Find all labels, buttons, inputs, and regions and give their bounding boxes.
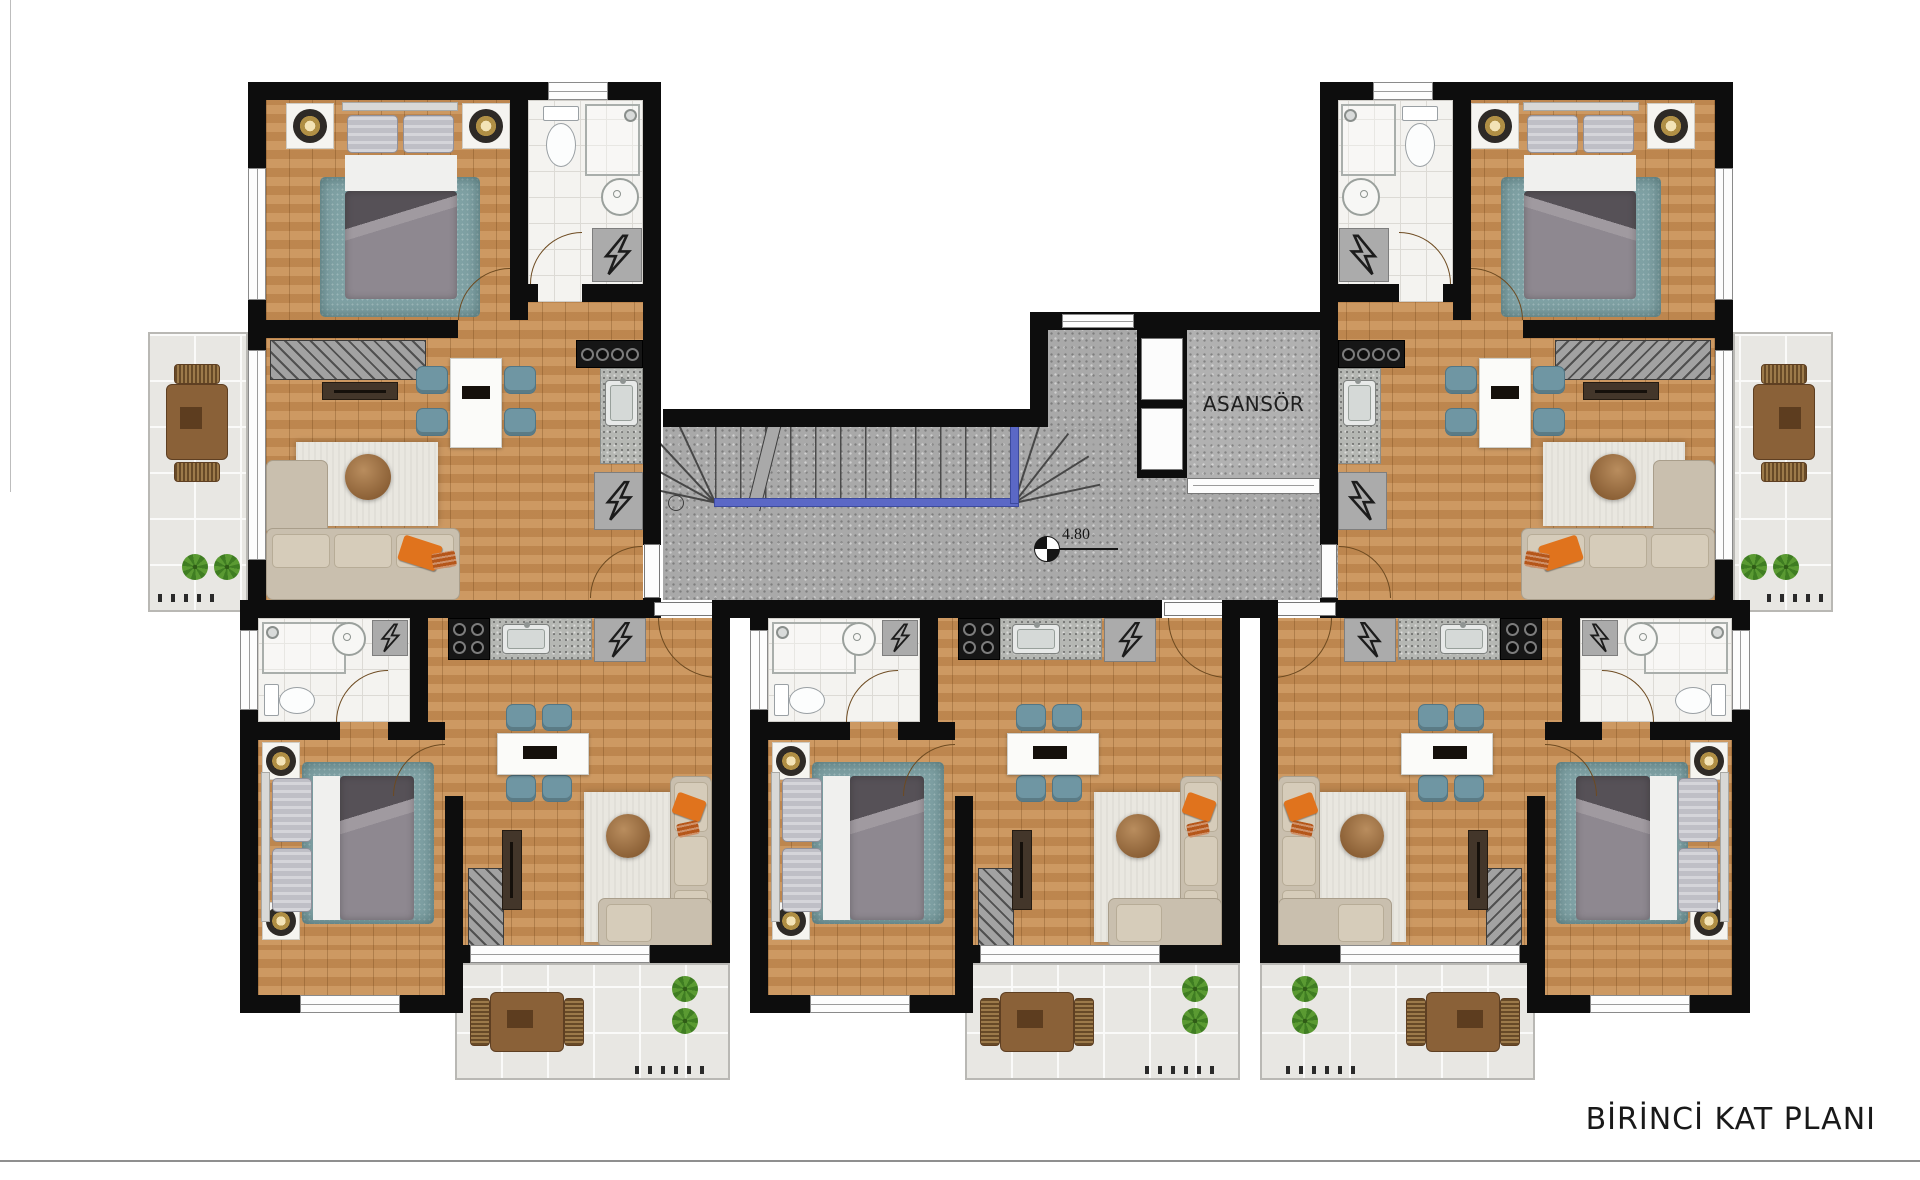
dining-chair [1454, 704, 1484, 731]
coffee-table [606, 814, 650, 858]
sofa-cushion [1282, 836, 1316, 886]
washbasin [332, 622, 366, 656]
wardrobe [1486, 868, 1522, 956]
dimension-ticks [1285, 1066, 1355, 1074]
dining-chair [1454, 775, 1484, 802]
bed-headboard [342, 102, 458, 111]
balcony-table [1426, 992, 1500, 1052]
corridor-wall [1240, 600, 1260, 618]
corridor-wall [663, 409, 1048, 427]
balcony-table [490, 992, 564, 1052]
dining-chair [504, 408, 536, 436]
electrical-panel [594, 472, 643, 530]
elevator-door [1141, 408, 1183, 470]
wardrobe [468, 868, 504, 956]
entry-door-sill [644, 544, 660, 598]
electrical-panel [1339, 228, 1389, 282]
balcony-slider-window [1715, 350, 1733, 560]
entry-door-sill [1321, 544, 1337, 598]
corridor-wall [750, 600, 1162, 618]
lightning-bolt-icon [1345, 619, 1395, 661]
burner-icon [453, 641, 466, 654]
kitchen-sink [1012, 624, 1060, 654]
apartment-top-left [148, 82, 661, 618]
dining-chair [542, 775, 572, 802]
bathroom-window [750, 630, 768, 710]
dining-chair [416, 408, 448, 436]
dining-chair [416, 366, 448, 394]
dining-table [1479, 358, 1531, 448]
entry-door-sill [1164, 602, 1226, 616]
electrical-panel [1104, 618, 1156, 662]
balcony-chair [1761, 364, 1807, 384]
coffee-table [345, 454, 391, 500]
electrical-panel [1582, 620, 1618, 656]
balcony-slider-window [1340, 945, 1520, 963]
corridor-wall [1030, 312, 1048, 427]
bathroom-window [1732, 630, 1750, 710]
frame-line [10, 0, 11, 492]
bed-sheet [1524, 155, 1636, 191]
partition-wall [410, 618, 428, 722]
balcony-slider-window [980, 945, 1160, 963]
frame-line [0, 1160, 1920, 1162]
party-wall [1320, 82, 1338, 545]
bed-pillow [782, 778, 822, 842]
sofa-cushion [1651, 534, 1709, 568]
lightning-bolt-icon [883, 621, 917, 655]
dining-chair [506, 704, 536, 731]
lamp-icon [293, 109, 327, 143]
electrical-panel [372, 620, 408, 656]
table-runner [1033, 746, 1067, 759]
burner-icon [963, 623, 976, 636]
burner-icon [981, 623, 994, 636]
burner-icon [471, 623, 484, 636]
level-value: 4.80 [1062, 526, 1090, 544]
partition-wall [266, 320, 458, 338]
partition-wall [920, 618, 938, 722]
corridor-wall [1338, 600, 1750, 618]
soundbar [1477, 842, 1480, 898]
lamp-icon [776, 746, 806, 776]
toilet-tank [774, 684, 789, 716]
kitchen-sink [605, 380, 638, 426]
stove [448, 618, 490, 660]
plant-icon [1292, 976, 1318, 1002]
plant-icon [1292, 1008, 1318, 1034]
dining-chair [1533, 366, 1565, 394]
party-wall [712, 600, 730, 963]
sofa-cushion [674, 836, 708, 886]
toilet-tank [1402, 106, 1438, 121]
toilet-tank [543, 106, 579, 121]
partition-wall [240, 722, 340, 740]
partition-wall [1523, 320, 1715, 338]
burner-icon [471, 641, 484, 654]
washbasin [1624, 622, 1658, 656]
dining-chair [1533, 408, 1565, 436]
partition-wall [510, 100, 528, 320]
bedroom-window [300, 995, 400, 1013]
toilet-bowl [1405, 123, 1435, 167]
bed-pillow [1678, 778, 1718, 842]
kitchen-sink [1343, 380, 1376, 426]
entry-door-sill [654, 602, 716, 616]
plant-icon [1182, 1008, 1208, 1034]
bed-sheet [345, 155, 457, 191]
bed-pillow [272, 848, 312, 912]
sofa-chaise [266, 460, 328, 536]
burner-icon [1387, 348, 1400, 361]
sofa-cushion [1184, 836, 1218, 886]
stair-handrail [1011, 427, 1018, 503]
dining-chair [1016, 775, 1046, 802]
toilet-tank [264, 684, 279, 716]
burner-icon [1342, 348, 1355, 361]
partition-wall [898, 722, 955, 740]
bed-blanket [345, 191, 457, 299]
balcony-chair [470, 998, 490, 1046]
coffee-table [1340, 814, 1384, 858]
burner-icon [581, 348, 594, 361]
toilet-tank [1711, 684, 1726, 716]
lightning-bolt-icon [593, 229, 641, 281]
plant-icon [1741, 554, 1767, 580]
bedroom-floor [768, 945, 955, 995]
partition-wall [388, 722, 445, 740]
stair-start-marker [668, 495, 684, 511]
bathroom-window [1373, 82, 1433, 100]
balcony-table [166, 384, 228, 460]
dining-chair [1418, 704, 1448, 731]
soundbar [334, 390, 386, 393]
lightning-bolt-icon [595, 473, 642, 529]
dining-chair [504, 366, 536, 394]
kitchen-sink [502, 624, 550, 654]
burner-icon [1524, 623, 1537, 636]
shower-head-icon [624, 109, 637, 122]
corridor-wall [730, 600, 750, 618]
stove [958, 618, 1000, 660]
toilet-bowl [279, 687, 315, 714]
balcony-chair [1500, 998, 1520, 1046]
bed-blanket [340, 776, 414, 920]
electrical-panel [882, 620, 918, 656]
plant-icon [214, 554, 240, 580]
washbasin [842, 622, 876, 656]
balcony-slider-window [470, 945, 650, 963]
plant-icon [1773, 554, 1799, 580]
stove [1338, 340, 1405, 368]
elevator-door [1141, 338, 1183, 400]
wardrobe [270, 340, 426, 380]
bed-blanket [850, 776, 924, 920]
stove [576, 340, 643, 368]
bed-blanket [1576, 776, 1650, 920]
lightning-bolt-icon [595, 619, 645, 661]
bedroom-window [1590, 995, 1690, 1013]
soundbar [510, 842, 513, 898]
dining-chair [542, 704, 572, 731]
corridor-window [1062, 314, 1134, 328]
plant-icon [182, 554, 208, 580]
bed-pillow [347, 115, 398, 153]
sofa-chaise [1653, 460, 1715, 536]
lightning-bolt-icon [1105, 619, 1155, 661]
lightning-bolt-icon [1583, 621, 1617, 655]
shower-head-icon [266, 626, 279, 639]
page-title: BİRİNCİ KAT PLANI [1586, 1102, 1876, 1137]
balcony-chair [564, 998, 584, 1046]
bedroom-window [1715, 168, 1733, 300]
washbasin [601, 178, 639, 216]
bed-pillow [1527, 115, 1578, 153]
plant-icon [672, 1008, 698, 1034]
sofa-cushion [1589, 534, 1647, 568]
bedroom-window [810, 995, 910, 1013]
lamp-icon [1478, 109, 1512, 143]
dining-chair [1052, 704, 1082, 731]
partition-wall [1443, 284, 1453, 302]
bedroom-floor [1545, 945, 1732, 995]
partition-wall [1545, 722, 1602, 740]
apartment-bottom-right [1260, 600, 1750, 1080]
burner-icon [596, 348, 609, 361]
electrical-panel [592, 228, 642, 282]
burner-icon [1506, 623, 1519, 636]
balcony-chair [980, 998, 1000, 1046]
dining-chair [1418, 775, 1448, 802]
bathroom-window [240, 630, 258, 710]
partition-wall [1562, 618, 1580, 722]
burner-icon [1524, 641, 1537, 654]
burner-icon [981, 641, 994, 654]
partition-wall [955, 796, 973, 995]
balcony-chair [1761, 462, 1807, 482]
bedroom-window [248, 168, 266, 300]
bed-pillow [1678, 848, 1718, 912]
elevator-label: ASANSÖR [1187, 330, 1320, 478]
dimension-ticks [158, 594, 216, 602]
kitchen-sink [1440, 624, 1488, 654]
balcony-chair [1074, 998, 1094, 1046]
dining-chair [1052, 775, 1082, 802]
dining-table [450, 358, 502, 448]
soundbar [1595, 390, 1647, 393]
lightning-bolt-icon [1339, 473, 1386, 529]
apartment-bottom-left [240, 600, 730, 1080]
bed-headboard [771, 772, 780, 922]
bed-blanket [1524, 191, 1636, 299]
partition-wall [582, 284, 643, 302]
party-wall [643, 82, 661, 545]
bedroom-floor [258, 945, 445, 995]
lamp-icon [266, 746, 296, 776]
dimension-ticks [1765, 594, 1823, 602]
plant-icon [672, 976, 698, 1002]
balcony-slider-window [248, 350, 266, 560]
balcony-table [1753, 384, 1815, 460]
partition-wall [528, 284, 538, 302]
sofa-cushion [334, 534, 392, 568]
burner-icon [626, 348, 639, 361]
level-marker-icon [1034, 536, 1060, 562]
dining-chair [1445, 408, 1477, 436]
level-marker-line [1060, 548, 1118, 550]
bed-pillow [272, 778, 312, 842]
soundbar [1020, 842, 1023, 898]
dining-chair [506, 775, 536, 802]
lightning-bolt-icon [373, 621, 407, 655]
stove [1500, 618, 1542, 660]
burner-icon [963, 641, 976, 654]
party-wall [1260, 600, 1278, 963]
shower-head-icon [776, 626, 789, 639]
bed-headboard [1720, 772, 1729, 922]
partition-wall [445, 796, 463, 995]
table-runner [1491, 386, 1519, 399]
burner-icon [611, 348, 624, 361]
partition-wall [1527, 796, 1545, 995]
corridor-wall [240, 600, 652, 618]
party-wall [1222, 600, 1240, 963]
plant-icon [1182, 976, 1208, 1002]
sill-line [1193, 485, 1314, 486]
dimension-ticks [1145, 1066, 1215, 1074]
toilet-bowl [546, 123, 576, 167]
bathroom-window [548, 82, 608, 100]
bed-pillow [782, 848, 822, 912]
balcony-chair [174, 364, 220, 384]
partition-wall [1650, 722, 1750, 740]
sofa-cushion [1116, 904, 1162, 942]
toilet-bowl [789, 687, 825, 714]
shower-head-icon [1711, 626, 1724, 639]
bed-headboard [1523, 102, 1639, 111]
dining-chair [1445, 366, 1477, 394]
electrical-panel [1338, 472, 1387, 530]
burner-icon [453, 623, 466, 636]
burner-icon [1357, 348, 1370, 361]
table-runner [462, 386, 490, 399]
electrical-panel [594, 618, 646, 662]
dimension-ticks [635, 1066, 705, 1074]
partition-wall [750, 722, 850, 740]
lamp-icon [1654, 109, 1688, 143]
stair-handrail [715, 499, 1018, 506]
partition-wall [1338, 284, 1399, 302]
elevator-pit-sill [1187, 478, 1320, 494]
bed-sheet [1650, 776, 1677, 920]
sofa-cushion [1338, 904, 1384, 942]
sofa-cushion [606, 904, 652, 942]
wardrobe [1555, 340, 1711, 380]
balcony-table [1000, 992, 1074, 1052]
table-runner [1433, 746, 1467, 759]
bed-sheet [313, 776, 340, 920]
shower-head-icon [1344, 109, 1357, 122]
floor-plan: ASANSÖR 4.80 [0, 0, 1920, 1180]
bed-headboard [261, 772, 270, 922]
partition-wall [1453, 100, 1471, 320]
lightning-bolt-icon [1340, 229, 1388, 281]
bed-pillow [403, 115, 454, 153]
balcony-chair [174, 462, 220, 482]
bed-pillow [1583, 115, 1634, 153]
apartment-top-right [1320, 82, 1833, 618]
balcony-chair [1406, 998, 1426, 1046]
lamp-icon [469, 109, 503, 143]
washbasin [1342, 178, 1380, 216]
electrical-panel [1344, 618, 1396, 662]
wardrobe [978, 868, 1014, 956]
dining-chair [1016, 704, 1046, 731]
sofa-cushion [272, 534, 330, 568]
burner-icon [1372, 348, 1385, 361]
bed-sheet [823, 776, 850, 920]
coffee-table [1116, 814, 1160, 858]
burner-icon [1506, 641, 1519, 654]
apartment-bottom-middle [750, 600, 1240, 1080]
toilet-bowl [1675, 687, 1711, 714]
table-runner [523, 746, 557, 759]
entry-door-sill [1274, 602, 1336, 616]
coffee-table [1590, 454, 1636, 500]
